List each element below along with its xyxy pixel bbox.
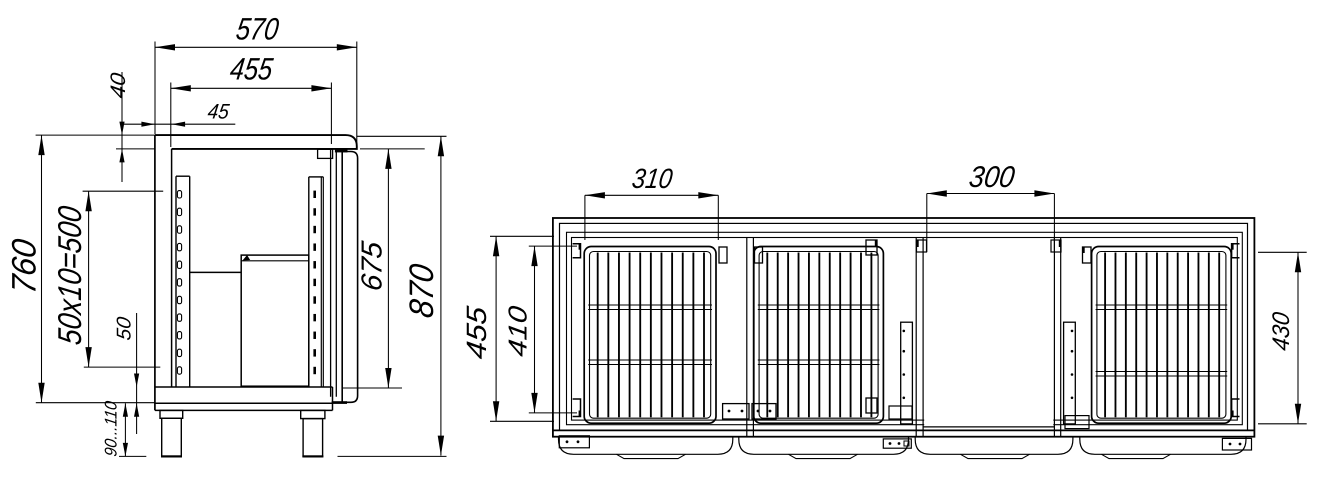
svg-text:675: 675: [357, 239, 389, 293]
svg-text:40: 40: [107, 71, 130, 99]
svg-text:310: 310: [630, 163, 675, 194]
svg-text:455: 455: [461, 304, 492, 361]
svg-text:570: 570: [234, 12, 281, 47]
svg-text:90...110: 90...110: [102, 399, 121, 457]
svg-text:760: 760: [6, 237, 44, 296]
svg-text:45: 45: [206, 101, 230, 124]
svg-text:430: 430: [1268, 310, 1295, 352]
svg-text:455: 455: [228, 52, 275, 87]
svg-text:300: 300: [967, 161, 1017, 194]
svg-text:870: 870: [403, 262, 441, 320]
svg-text:50: 50: [114, 316, 136, 342]
svg-text:410: 410: [503, 304, 533, 359]
svg-text:50x10=500: 50x10=500: [52, 203, 89, 347]
